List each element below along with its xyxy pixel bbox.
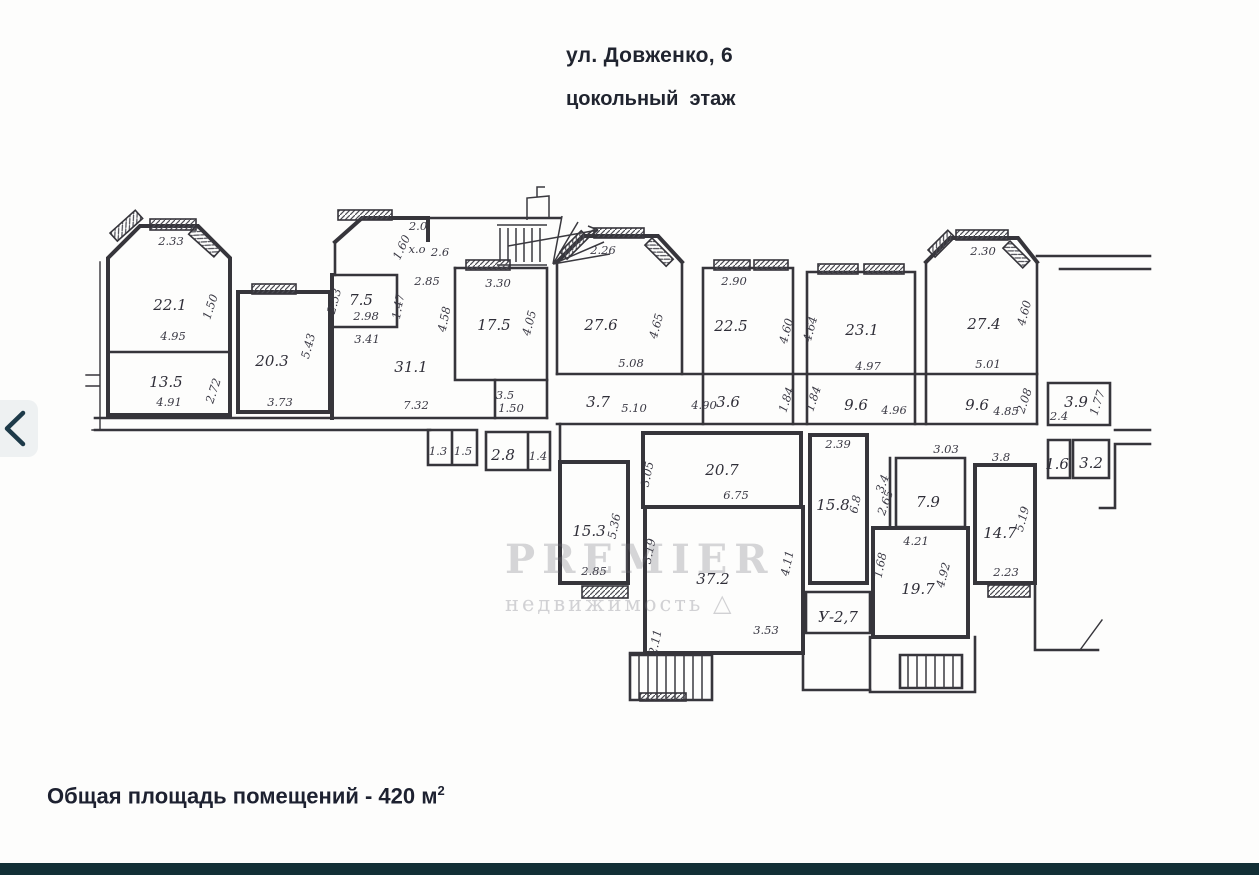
previous-image-button[interactable] xyxy=(0,400,38,457)
dimension-label: 3.03 xyxy=(933,442,959,456)
chevron-left-icon xyxy=(0,400,37,457)
room-area-label: 7.9 xyxy=(916,493,940,511)
dimension-label: 2.39 xyxy=(824,437,851,451)
dimension-label: 4.05 xyxy=(519,309,539,338)
dimension-label: 2.90 xyxy=(720,274,747,288)
dimension-label: 4.58 xyxy=(434,305,453,334)
room-area-label: 15.3 xyxy=(572,522,605,540)
dimension-label: 4.60 xyxy=(1014,299,1034,328)
dimension-label: 2.0 xyxy=(408,219,427,233)
room-area-label: 31.1 xyxy=(394,358,427,376)
room-area-label: 3.2 xyxy=(1079,454,1103,472)
room-area-label: У-2,7 xyxy=(818,608,858,626)
room-area-label: 37.2 xyxy=(696,570,729,588)
dimension-label: 2.85 xyxy=(580,564,607,578)
dimension-label: 5.36 xyxy=(605,512,624,540)
dimension-label: 1.50 xyxy=(498,401,524,415)
room-area-label: 20.7 xyxy=(704,461,739,479)
room-area-label: 2.8 xyxy=(490,446,515,464)
dimension-label: 5.10 xyxy=(621,401,647,415)
room-area-label: 17.5 xyxy=(477,316,510,334)
dimension-label: 3.73 xyxy=(267,395,293,409)
dimension-label: 4.95 xyxy=(159,329,186,343)
dimension-label: 2.65 xyxy=(874,488,896,518)
room-area-label: 20.3 xyxy=(254,352,288,370)
dimension-label: 3.53 xyxy=(753,623,779,637)
dimension-label: 2.85 xyxy=(413,274,440,288)
floor-plan-walls xyxy=(86,218,1150,700)
dimension-label: 2.98 xyxy=(352,309,379,323)
bottom-accent-bar xyxy=(0,863,1259,875)
staircase-bottom-right xyxy=(908,655,953,688)
dimension-label: 5.08 xyxy=(618,356,644,370)
room-area-label: 13.5 xyxy=(149,373,182,391)
room-area-label: 3.7 xyxy=(586,393,610,411)
dimension-label: 5.01 xyxy=(975,357,1001,371)
dimension-label: 1.47 xyxy=(389,292,407,320)
room-area-label: 19.7 xyxy=(901,580,935,598)
dimension-label: 2.72 xyxy=(202,376,224,406)
dimension-label: 5.19 xyxy=(1012,505,1032,533)
dimension-label: 3.5 xyxy=(496,388,514,402)
dimension-label: 4.11 xyxy=(777,549,796,578)
room-area-label: 22.5 xyxy=(713,317,747,335)
dimension-label: 7.32 xyxy=(403,398,429,412)
room-area-label: 23.1 xyxy=(844,321,878,339)
window-marks xyxy=(110,210,1030,701)
floor-plan-svg: 22.113.520.37.531.117.527.622.523.127.43… xyxy=(0,0,1259,875)
dimension-label: 4.21 xyxy=(902,534,929,548)
room-area-label: 9.6 xyxy=(844,396,868,414)
room-area-label: 15.8 xyxy=(816,496,849,514)
dimension-label: 1.4 xyxy=(529,449,547,463)
dimension-label: 2.23 xyxy=(992,565,1019,579)
dimension-label: 4.64 xyxy=(800,315,820,344)
room-area-label: 3.6 xyxy=(716,393,740,411)
dimension-label: 4.96 xyxy=(880,403,907,417)
room-area-label: 27.6 xyxy=(583,316,618,334)
dimension-label: 4.90 xyxy=(690,398,717,412)
room-area-label: 9.6 xyxy=(965,396,989,414)
dimension-label: 3.30 xyxy=(485,276,511,290)
dimension-label: 1.5 xyxy=(454,444,472,458)
dimension-label: 4.91 xyxy=(155,395,182,409)
dimension-label: 3.41 xyxy=(354,332,380,346)
dimension-label: 4.97 xyxy=(854,359,881,373)
room-area-label: 1.6 xyxy=(1045,455,1069,473)
dimension-label: 2.30 xyxy=(969,244,996,258)
total-area-text: Общая площадь помещений - 420 м2 xyxy=(47,783,445,809)
dimension-label: 4.65 xyxy=(646,312,666,341)
dimension-label: 6.75 xyxy=(723,488,749,502)
dimension-label: 1.50 xyxy=(200,292,221,321)
total-area-superscript: 2 xyxy=(438,783,445,798)
page: ул. Довженко, 6 цокольный этаж xyxy=(0,0,1259,875)
dimension-label: х.о xyxy=(408,242,425,256)
dimension-label: 1.77 xyxy=(1087,388,1108,417)
room-area-label: 27.4 xyxy=(966,315,1000,333)
dimension-label: 2.08 xyxy=(1013,386,1035,416)
dimension-label: 3.05 xyxy=(638,460,657,488)
dimension-label: 2.33 xyxy=(157,234,184,248)
dimension-label: 2.26 xyxy=(589,243,616,257)
dimension-label: 2.6 xyxy=(430,245,449,259)
dimension-label: 5.43 xyxy=(298,332,318,360)
dimension-label: 2.4 xyxy=(1049,409,1068,423)
dimension-label: 4.92 xyxy=(933,561,953,590)
dimension-label: 3.19 xyxy=(640,537,659,565)
room-area-label: 22.1 xyxy=(152,296,186,314)
room-area-label: 7.5 xyxy=(349,291,373,309)
dimension-label: 6.8 xyxy=(846,494,863,515)
dimension-label: 3.8 xyxy=(992,450,1010,464)
dimension-label: 1.3 xyxy=(429,444,447,458)
